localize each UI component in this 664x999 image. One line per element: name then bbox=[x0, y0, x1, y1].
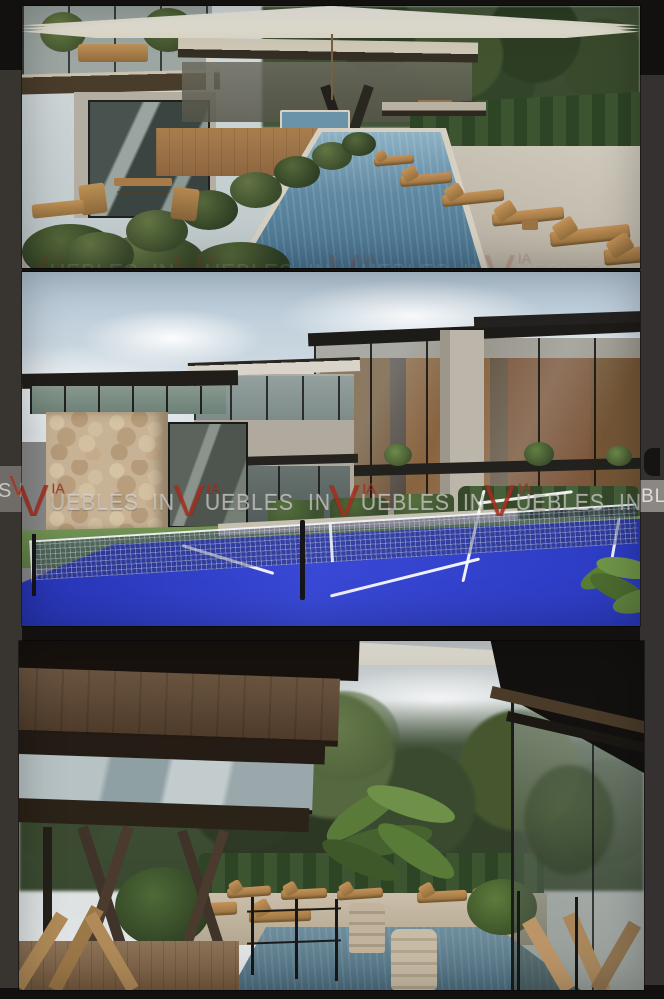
chair-slat bbox=[591, 921, 641, 990]
patio-chair bbox=[170, 187, 200, 222]
railing-post bbox=[295, 899, 298, 979]
balcony-plant bbox=[524, 442, 554, 466]
gallery-photo-pool-deck[interactable]: INVIAUEBLESINVIAUEBLESINVIAUEBLESINVIAUE… bbox=[22, 6, 640, 268]
stone-wall bbox=[46, 412, 168, 530]
gallery-photo-padel-court[interactable]: /* court line container offset: lines ar… bbox=[22, 272, 640, 626]
side-table bbox=[522, 220, 538, 230]
patio-table bbox=[114, 178, 172, 186]
stone-pavilion bbox=[22, 364, 262, 536]
chair-slat bbox=[84, 912, 138, 990]
hedge-bush bbox=[342, 132, 376, 156]
hedge-bush bbox=[230, 172, 282, 208]
planter-pot bbox=[349, 903, 385, 953]
pavilion-roof bbox=[178, 37, 478, 62]
deck-chair-right bbox=[531, 911, 636, 990]
railing-post bbox=[575, 897, 578, 990]
balcony-plant bbox=[606, 446, 632, 466]
net-post bbox=[32, 534, 36, 596]
right-sliver-watermark-band: BLES I bbox=[640, 480, 664, 512]
pool-bar-roof bbox=[382, 102, 486, 116]
balcony-plant bbox=[384, 444, 412, 466]
railing-post bbox=[517, 891, 520, 990]
right-sliver-watermark-text: BLES I bbox=[641, 486, 664, 508]
left-sliver-watermark-band: S IN V bbox=[0, 466, 22, 512]
glass-tree-reflection bbox=[524, 765, 614, 875]
umbrella-pole bbox=[331, 34, 333, 100]
glass-entry bbox=[168, 422, 248, 528]
deck-chair bbox=[25, 903, 137, 990]
right-sliver-dark-notch bbox=[644, 448, 660, 476]
left-sliver-red-v-fragment: V bbox=[9, 470, 22, 502]
net-post bbox=[300, 520, 305, 600]
planter-pot bbox=[391, 929, 437, 990]
clerestory-glass bbox=[30, 386, 226, 414]
gallery-photo-jungle-pool[interactable] bbox=[19, 641, 644, 990]
photo-gallery: S IN V BLES I bbox=[0, 0, 664, 999]
terrace-furniture bbox=[78, 44, 148, 62]
